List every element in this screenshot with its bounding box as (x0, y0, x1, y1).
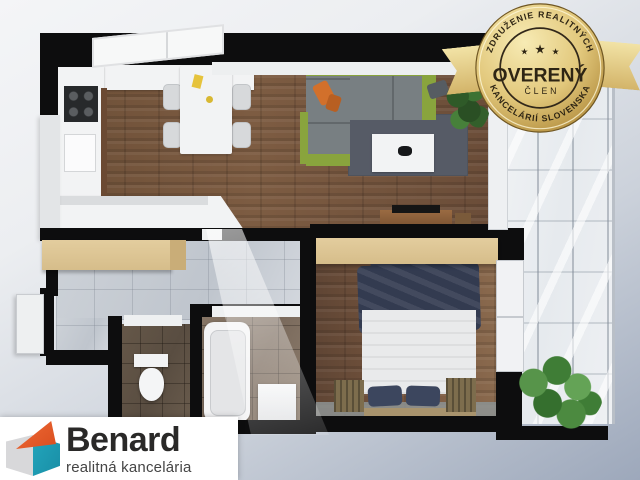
kitchen-window-divider (166, 32, 168, 58)
bedside-crate (446, 378, 476, 412)
bed-pillow (406, 385, 441, 406)
hall-wardrobe (42, 240, 172, 270)
toilet-tank (134, 354, 168, 367)
washer-box (258, 384, 296, 422)
bedroom-wardrobe (316, 238, 498, 264)
badge-title: OVERENÝ (493, 63, 588, 87)
wall-bedroom-left (300, 232, 316, 434)
threshold-wc-door (124, 315, 182, 326)
wall-left-light (40, 115, 60, 239)
bedside-crate (334, 380, 364, 412)
kitchen-counter-wood-edge (101, 88, 107, 210)
sofa-end-green (306, 154, 350, 166)
star-icon: ★ (521, 46, 529, 56)
table-decor (206, 96, 213, 103)
bedroom-window-divider (497, 316, 523, 318)
threshold-kitchen-hall (202, 229, 222, 240)
coffee-table-bowl (398, 146, 412, 156)
brand-name: Benard (66, 423, 192, 457)
logo-text: Benard realitná kancelária (66, 423, 192, 476)
stove-icon (64, 86, 98, 122)
kitchen-sink (64, 134, 96, 172)
brand-tagline: realitná kancelária (66, 459, 192, 476)
dining-chair (232, 84, 251, 110)
bedroom-window (496, 260, 524, 372)
wall-wc-left (108, 316, 122, 426)
wall-wc-bath (190, 314, 202, 426)
overeny-badge: ZDRUŽENIE REALITNÝCH ★ ★ ★ OVERENÝ ČLEN … (472, 0, 608, 136)
logo-mark (6, 420, 60, 478)
star-icon: ★ (534, 42, 545, 56)
balcony-plant (510, 350, 604, 432)
tv-screen (392, 205, 440, 213)
dining-chair (232, 122, 251, 148)
badge-member: ČLEN (524, 86, 559, 96)
wall-left-upper (40, 33, 58, 117)
listing-photo: ZDRUŽENIE REALITNÝCH ★ ★ ★ OVERENÝ ČLEN … (0, 0, 640, 480)
hall-wardrobe-side (170, 240, 186, 270)
wall-bedroom-right-cap (496, 228, 524, 264)
toilet-bowl (139, 368, 164, 401)
kitchen-counter-edge-stripe (58, 196, 208, 205)
entrance-door (16, 294, 44, 354)
star-icon: ★ (552, 46, 560, 56)
bathtub-inner (210, 330, 246, 416)
threshold-bath-door (212, 306, 300, 317)
agency-logo: Benard realitná kancelária (0, 417, 238, 480)
bed-pillow (367, 385, 402, 407)
wall-bedroom-bottom (300, 416, 510, 432)
dining-table (180, 66, 232, 154)
